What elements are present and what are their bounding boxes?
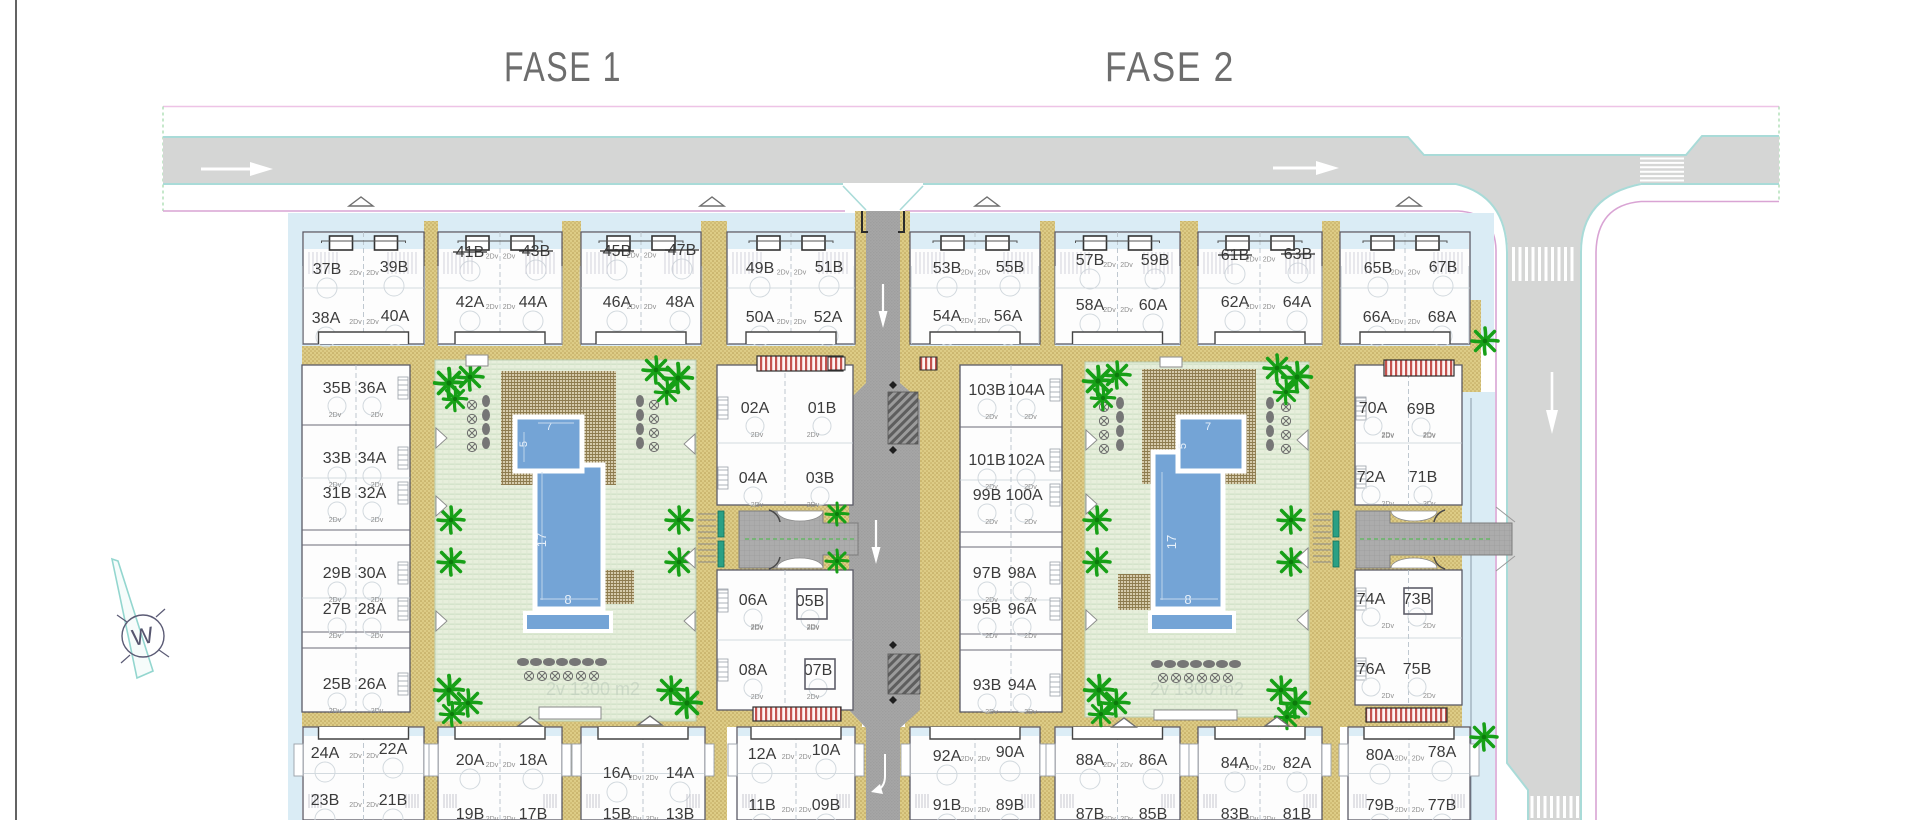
svg-text:36A: 36A: [358, 380, 387, 397]
svg-text:17B: 17B: [519, 806, 547, 820]
svg-text:06A: 06A: [739, 592, 768, 609]
svg-text:08A: 08A: [739, 662, 768, 679]
svg-text:2Dv: 2Dv: [1120, 762, 1133, 769]
svg-text:2Dv: 2Dv: [349, 802, 362, 809]
svg-text:2Dv: 2Dv: [629, 775, 642, 782]
svg-text:2Dv: 2Dv: [1423, 433, 1436, 440]
svg-text:21B: 21B: [379, 792, 407, 809]
svg-text:90A: 90A: [996, 744, 1025, 761]
svg-text:50A: 50A: [746, 309, 775, 326]
svg-text:2Dv: 2Dv: [371, 517, 384, 524]
svg-text:20A: 20A: [456, 752, 485, 769]
svg-text:2Dv: 2Dv: [1382, 693, 1395, 700]
svg-text:2Dv: 2Dv: [1412, 807, 1425, 814]
svg-text:2Dv: 2Dv: [644, 304, 657, 311]
svg-text:98A: 98A: [1008, 565, 1037, 582]
svg-text:2Dv: 2Dv: [1024, 414, 1037, 421]
svg-text:2Dv: 2Dv: [782, 754, 795, 761]
svg-text:7: 7: [1205, 421, 1211, 433]
svg-text:2Dv: 2Dv: [961, 756, 974, 763]
svg-text:2Dv: 2Dv: [1103, 816, 1116, 820]
svg-text:2Dv: 2Dv: [1246, 257, 1259, 264]
svg-text:2Dv: 2Dv: [985, 633, 998, 640]
svg-text:81B: 81B: [1283, 806, 1311, 820]
svg-text:56A: 56A: [994, 308, 1023, 325]
svg-text:2Dv: 2Dv: [1423, 501, 1436, 508]
svg-text:2Dv: 2Dv: [985, 709, 998, 716]
svg-text:2Dv: 2Dv: [1024, 484, 1037, 491]
svg-text:2Dv: 2Dv: [799, 807, 812, 814]
svg-text:79B: 79B: [1366, 797, 1394, 814]
svg-text:2Dv: 2Dv: [366, 802, 379, 809]
svg-text:2Dv: 2Dv: [349, 753, 362, 760]
svg-text:2Dv: 2Dv: [329, 482, 342, 489]
svg-text:2Dv: 2Dv: [629, 816, 642, 820]
svg-text:2Dv: 2Dv: [1395, 807, 1408, 814]
svg-text:2Dv: 2Dv: [1120, 307, 1133, 314]
svg-text:5: 5: [1177, 443, 1189, 449]
svg-text:49B: 49B: [746, 260, 774, 277]
svg-text:13B: 13B: [666, 806, 694, 820]
svg-text:66A: 66A: [1363, 309, 1392, 326]
svg-text:2Dv: 2Dv: [644, 253, 657, 260]
svg-text:2Dv: 2Dv: [1024, 633, 1037, 640]
svg-text:2v 1300 m2: 2v 1300 m2: [546, 679, 640, 699]
svg-text:2Dv: 2Dv: [751, 432, 764, 439]
svg-text:26A: 26A: [358, 676, 387, 693]
svg-text:2Dv: 2Dv: [985, 519, 998, 526]
svg-text:67B: 67B: [1429, 259, 1457, 276]
svg-text:2Dv: 2Dv: [1103, 262, 1116, 269]
svg-text:2Dv: 2Dv: [1263, 816, 1276, 820]
svg-text:82A: 82A: [1283, 755, 1312, 772]
svg-text:05B: 05B: [796, 593, 824, 610]
svg-text:2Dv: 2Dv: [1103, 762, 1116, 769]
svg-text:58A: 58A: [1076, 297, 1105, 314]
svg-text:33B: 33B: [323, 450, 351, 467]
svg-text:64A: 64A: [1283, 294, 1312, 311]
svg-text:85B: 85B: [1139, 806, 1167, 820]
svg-text:94A: 94A: [1008, 677, 1037, 694]
svg-text:54A: 54A: [933, 308, 962, 325]
svg-text:2Dv: 2Dv: [1024, 519, 1037, 526]
svg-text:FASE 1: FASE 1: [504, 43, 622, 90]
svg-text:2Dv: 2Dv: [349, 319, 362, 326]
svg-text:86A: 86A: [1139, 752, 1168, 769]
svg-text:2Dv: 2Dv: [1263, 257, 1276, 264]
svg-text:2Dv: 2Dv: [371, 597, 384, 604]
svg-text:76A: 76A: [1357, 661, 1386, 678]
svg-text:10A: 10A: [812, 742, 841, 759]
svg-text:77B: 77B: [1428, 797, 1456, 814]
svg-text:2Dv: 2Dv: [782, 807, 795, 814]
svg-text:2Dv: 2Dv: [978, 318, 991, 325]
svg-text:2Dv: 2Dv: [1024, 709, 1037, 716]
svg-text:2Dv: 2Dv: [1120, 262, 1133, 269]
svg-text:2Dv: 2Dv: [1423, 623, 1436, 630]
svg-text:16A: 16A: [603, 765, 632, 782]
svg-text:2Dv: 2Dv: [349, 270, 362, 277]
svg-text:22A: 22A: [379, 741, 408, 758]
svg-text:52A: 52A: [814, 309, 843, 326]
svg-text:2Dv: 2Dv: [1391, 270, 1404, 277]
svg-text:8: 8: [564, 592, 571, 607]
svg-text:2Dv: 2Dv: [985, 484, 998, 491]
svg-text:2Dv: 2Dv: [486, 254, 499, 261]
svg-text:40A: 40A: [381, 308, 410, 325]
svg-text:74A: 74A: [1357, 591, 1386, 608]
svg-text:2Dv: 2Dv: [1024, 597, 1037, 604]
svg-text:2Dv: 2Dv: [1246, 816, 1259, 820]
svg-text:2Dv: 2Dv: [751, 502, 764, 509]
svg-text:8: 8: [1184, 592, 1191, 607]
svg-text:2Dv: 2Dv: [1382, 433, 1395, 440]
svg-text:2Dv: 2Dv: [646, 775, 659, 782]
svg-text:38A: 38A: [312, 310, 341, 327]
svg-text:2Dv: 2Dv: [1246, 304, 1259, 311]
svg-text:2Dv: 2Dv: [807, 432, 820, 439]
svg-text:29B: 29B: [323, 565, 351, 582]
svg-text:11B: 11B: [748, 797, 775, 814]
svg-text:101B: 101B: [968, 452, 1005, 469]
svg-text:103B: 103B: [968, 382, 1005, 399]
svg-text:19B: 19B: [456, 806, 484, 820]
svg-text:2Dv: 2Dv: [1395, 756, 1408, 763]
svg-text:65B: 65B: [1364, 260, 1392, 277]
svg-text:2Dv: 2Dv: [978, 270, 991, 277]
svg-text:42A: 42A: [456, 294, 485, 311]
svg-text:17: 17: [534, 533, 549, 547]
svg-text:55B: 55B: [996, 259, 1024, 276]
svg-text:15B: 15B: [603, 806, 631, 820]
svg-text:2Dv: 2Dv: [794, 270, 807, 277]
svg-text:18A: 18A: [519, 752, 548, 769]
svg-text:92A: 92A: [933, 748, 962, 765]
svg-text:2Dv: 2Dv: [486, 816, 499, 820]
svg-text:2Dv: 2Dv: [1103, 307, 1116, 314]
svg-text:2Dv: 2Dv: [1412, 756, 1425, 763]
svg-text:2Dv: 2Dv: [329, 633, 342, 640]
svg-text:53B: 53B: [933, 260, 961, 277]
svg-text:2Dv: 2Dv: [751, 625, 764, 632]
svg-text:2Dv: 2Dv: [486, 304, 499, 311]
svg-text:2Dv: 2Dv: [627, 304, 640, 311]
svg-text:59B: 59B: [1141, 252, 1169, 269]
svg-text:2Dv: 2Dv: [1263, 304, 1276, 311]
svg-text:34A: 34A: [358, 450, 387, 467]
svg-text:51B: 51B: [815, 259, 843, 276]
svg-text:17: 17: [1164, 535, 1179, 549]
svg-text:2Dv: 2Dv: [1120, 816, 1133, 820]
svg-text:2Dv: 2Dv: [777, 319, 790, 326]
svg-text:2Dv: 2Dv: [1382, 501, 1395, 508]
svg-text:2Dv: 2Dv: [777, 270, 790, 277]
svg-text:60A: 60A: [1139, 297, 1168, 314]
svg-text:91B: 91B: [933, 797, 961, 814]
svg-text:2Dv: 2Dv: [646, 816, 659, 820]
svg-text:102A: 102A: [1007, 452, 1045, 469]
svg-text:48A: 48A: [666, 294, 695, 311]
svg-text:25B: 25B: [323, 676, 351, 693]
svg-text:44A: 44A: [519, 294, 548, 311]
svg-text:07B: 07B: [804, 662, 832, 679]
svg-text:2Dv: 2Dv: [503, 762, 516, 769]
svg-text:30A: 30A: [358, 565, 387, 582]
svg-text:2v 1300 m2: 2v 1300 m2: [1150, 679, 1244, 699]
svg-text:2Dv: 2Dv: [985, 414, 998, 421]
svg-text:68A: 68A: [1428, 309, 1457, 326]
svg-text:2Dv: 2Dv: [371, 708, 384, 715]
svg-text:14A: 14A: [666, 765, 695, 782]
svg-text:12A: 12A: [748, 746, 777, 763]
svg-text:75B: 75B: [1403, 661, 1431, 678]
svg-text:2Dv: 2Dv: [985, 597, 998, 604]
svg-text:70A: 70A: [1359, 400, 1388, 417]
svg-text:93B: 93B: [973, 677, 1001, 694]
svg-text:2Dv: 2Dv: [1382, 623, 1395, 630]
svg-text:2Dv: 2Dv: [371, 482, 384, 489]
svg-text:2Dv: 2Dv: [799, 754, 812, 761]
svg-text:09B: 09B: [812, 797, 840, 814]
svg-text:2Dv: 2Dv: [1246, 765, 1259, 772]
svg-text:2Dv: 2Dv: [1391, 319, 1404, 326]
svg-text:2Dv: 2Dv: [807, 625, 820, 632]
svg-text:78A: 78A: [1428, 744, 1457, 761]
svg-text:57B: 57B: [1076, 252, 1104, 269]
svg-text:2Dv: 2Dv: [807, 694, 820, 701]
svg-text:72A: 72A: [1357, 469, 1386, 486]
svg-text:2Dv: 2Dv: [978, 807, 991, 814]
svg-text:73B: 73B: [1403, 591, 1431, 608]
svg-text:2Dv: 2Dv: [329, 708, 342, 715]
svg-text:03B: 03B: [806, 470, 834, 487]
svg-text:2Dv: 2Dv: [486, 762, 499, 769]
svg-text:2Dv: 2Dv: [627, 253, 640, 260]
svg-text:80A: 80A: [1366, 747, 1395, 764]
svg-text:2Dv: 2Dv: [329, 412, 342, 419]
svg-text:39B: 39B: [380, 259, 408, 276]
svg-text:04A: 04A: [739, 470, 768, 487]
svg-text:2Dv: 2Dv: [371, 633, 384, 640]
svg-text:87B: 87B: [1076, 806, 1104, 820]
svg-text:88A: 88A: [1076, 752, 1105, 769]
svg-text:2Dv: 2Dv: [503, 304, 516, 311]
svg-text:2Dv: 2Dv: [329, 517, 342, 524]
svg-text:89B: 89B: [996, 797, 1024, 814]
svg-text:2Dv: 2Dv: [794, 319, 807, 326]
svg-text:2Dv: 2Dv: [371, 412, 384, 419]
svg-text:2Dv: 2Dv: [961, 807, 974, 814]
svg-text:2Dv: 2Dv: [961, 270, 974, 277]
svg-text:69B: 69B: [1407, 401, 1435, 418]
svg-text:2Dv: 2Dv: [751, 694, 764, 701]
svg-text:71B: 71B: [1409, 469, 1437, 486]
svg-text:97B: 97B: [973, 565, 1001, 582]
svg-text:2Dv: 2Dv: [961, 318, 974, 325]
svg-text:2Dv: 2Dv: [366, 270, 379, 277]
svg-text:2Dv: 2Dv: [503, 254, 516, 261]
svg-text:2Dv: 2Dv: [503, 816, 516, 820]
svg-text:2Dv: 2Dv: [329, 597, 342, 604]
svg-text:2Dv: 2Dv: [807, 502, 820, 509]
svg-text:35B: 35B: [323, 380, 351, 397]
svg-text:24A: 24A: [311, 745, 340, 762]
svg-text:02A: 02A: [741, 400, 770, 417]
svg-text:37B: 37B: [313, 261, 341, 278]
svg-text:2Dv: 2Dv: [366, 319, 379, 326]
svg-text:01B: 01B: [808, 400, 836, 417]
svg-text:2Dv: 2Dv: [366, 753, 379, 760]
svg-text:2Dv: 2Dv: [1423, 693, 1436, 700]
svg-text:104A: 104A: [1007, 382, 1045, 399]
svg-text:2Dv: 2Dv: [1263, 765, 1276, 772]
svg-text:2Dv: 2Dv: [978, 756, 991, 763]
svg-text:23B: 23B: [311, 792, 339, 809]
svg-text:2Dv: 2Dv: [1408, 270, 1421, 277]
svg-text:FASE 2: FASE 2: [1105, 43, 1235, 90]
svg-text:2Dv: 2Dv: [1408, 319, 1421, 326]
